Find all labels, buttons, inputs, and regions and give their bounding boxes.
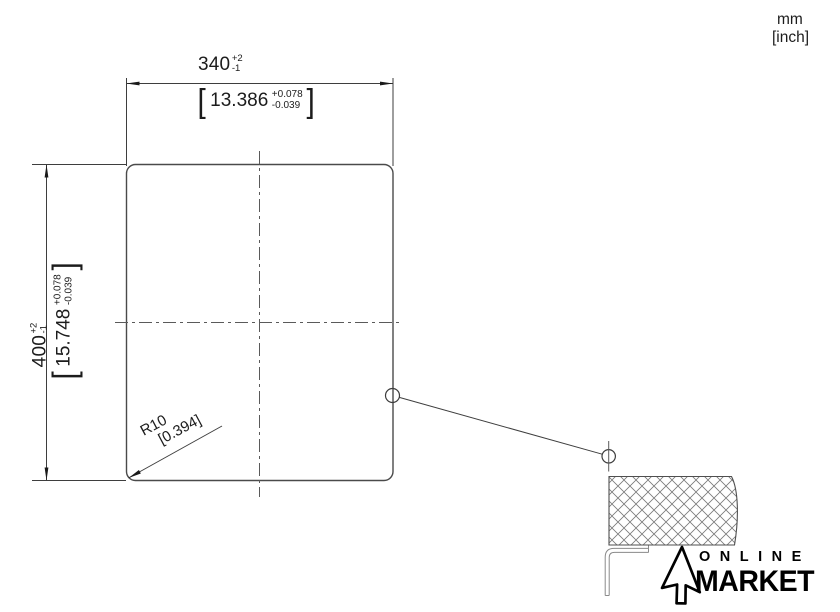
units-inch: [inch]	[772, 29, 809, 47]
height-dimension-inch: [ 15.748 +0.078 -0.039 ]	[48, 262, 81, 380]
arrowhead-left	[127, 82, 140, 86]
open-bracket: [	[48, 371, 81, 379]
rim-outer-line	[605, 548, 648, 595]
detail-leader-line	[399, 397, 602, 454]
height-inch-tolerance: +0.078 -0.039	[54, 274, 75, 305]
rim-inner-line	[609, 552, 648, 595]
width-dimension-mm: 340 +2 -1	[198, 53, 243, 76]
units-mm: mm	[777, 11, 809, 29]
open-bracket: [	[197, 84, 205, 117]
arrowhead-up	[45, 165, 49, 178]
width-inch-tol-minus: -0.039	[272, 101, 303, 112]
width-inch-tolerance: +0.078 -0.039	[272, 90, 303, 111]
units-label: mm [inch]	[772, 11, 809, 47]
logo-line2: MARKET	[695, 567, 814, 597]
width-inch-tol-plus: +0.078	[272, 90, 303, 101]
width-inch-value: 13.386	[210, 90, 268, 112]
logo-line1: ONLINE	[699, 549, 811, 565]
drawing-linework	[0, 0, 840, 612]
sink-rim-profile	[605, 546, 648, 596]
height-inch-tol-plus: +0.078	[54, 274, 65, 305]
height-tolerance: +2 -1	[30, 323, 49, 334]
countertop-section-hatched	[609, 477, 737, 546]
arrowhead-right	[380, 82, 393, 86]
close-bracket: ]	[306, 84, 314, 117]
arrowhead-down	[45, 468, 49, 481]
technical-drawing-sink-cutout: mm [inch] 340 +2 -1 [ 13.386 +0.078 -0.0…	[0, 0, 840, 612]
height-inch-tol-minus: -0.039	[64, 274, 75, 305]
width-tol-minus: -1	[232, 64, 243, 74]
width-dimension-inch: [ 13.386 +0.078 -0.039 ]	[197, 84, 315, 117]
height-inch-value: 15.748	[53, 309, 75, 367]
width-tolerance: +2 -1	[232, 54, 243, 73]
width-value: 340	[198, 53, 230, 76]
close-bracket: ]	[48, 263, 81, 271]
